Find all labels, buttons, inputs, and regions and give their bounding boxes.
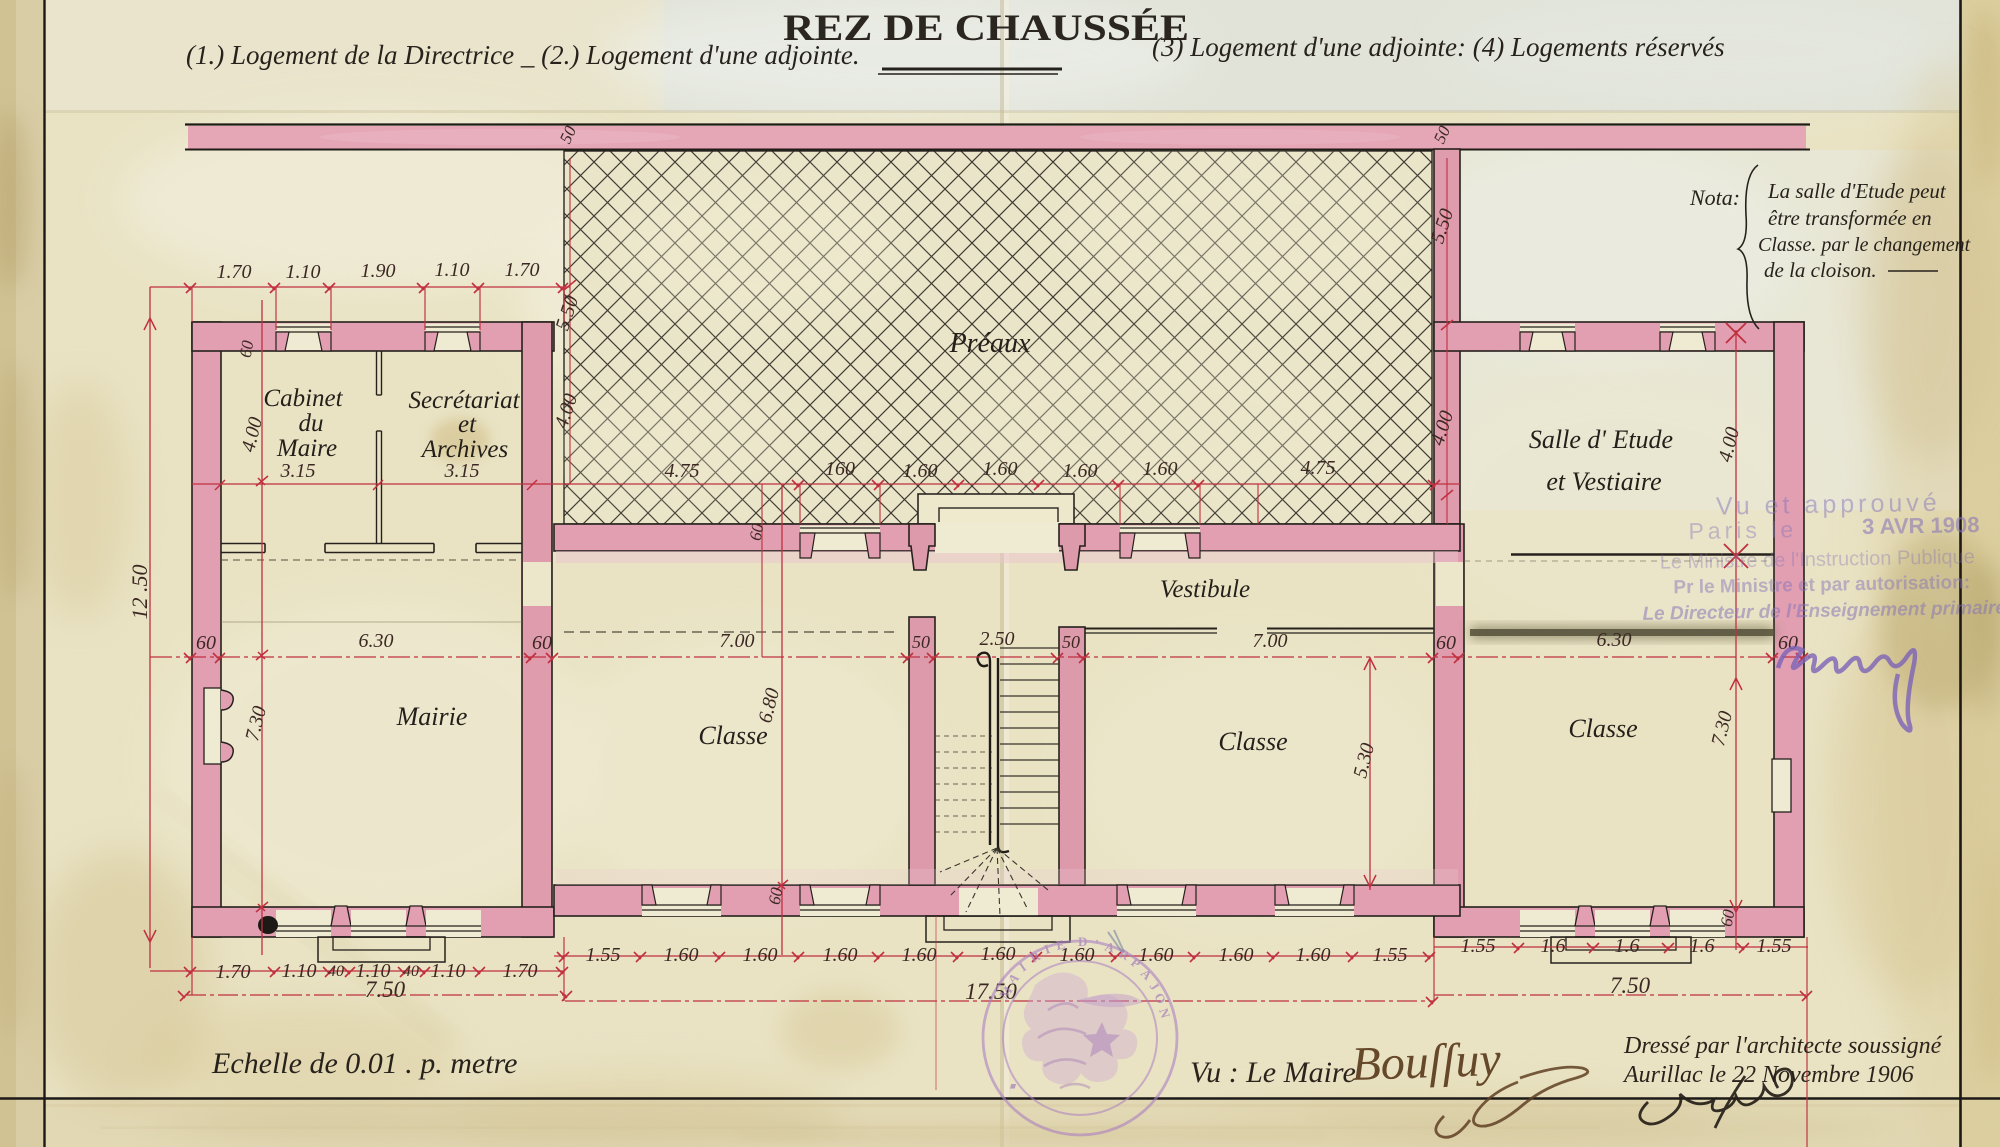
svg-text:Aurillac le 22 Novembre 1906: Aurillac le 22 Novembre 1906: [1622, 1062, 1914, 1088]
svg-text:Vestibule: Vestibule: [1160, 576, 1250, 603]
svg-text:6.30: 6.30: [1597, 629, 1632, 651]
svg-text:1.60: 1.60: [903, 460, 938, 482]
svg-text:Echelle de 0.01 . p. metre: Echelle de 0.01 . p. metre: [211, 1047, 517, 1080]
svg-text:12 .50: 12 .50: [127, 565, 152, 620]
svg-text:1.70: 1.70: [503, 960, 538, 982]
svg-text:7.00: 7.00: [1253, 630, 1288, 652]
svg-text:1.60: 1.60: [1139, 944, 1174, 966]
svg-text:Nota:: Nota:: [1689, 185, 1740, 210]
svg-text:50: 50: [912, 632, 930, 652]
svg-text:et: et: [458, 411, 477, 438]
svg-text:1.60: 1.60: [981, 943, 1016, 965]
svg-text:160: 160: [825, 458, 855, 480]
svg-text:de la cloison.: de la cloison.: [1764, 258, 1877, 282]
svg-text:La salle d'Etude peut: La salle d'Etude peut: [1767, 179, 1947, 203]
svg-text:50: 50: [1062, 632, 1080, 652]
svg-text:1.10: 1.10: [431, 960, 466, 982]
svg-text:1.60: 1.60: [1063, 460, 1098, 482]
svg-text:Mairie: Mairie: [396, 702, 468, 731]
svg-text:1.70: 1.70: [505, 259, 540, 281]
svg-text:Classe: Classe: [1218, 727, 1287, 756]
svg-text:3 AVR 1908: 3 AVR 1908: [1862, 512, 1980, 539]
svg-text:être transformée en: être transformée en: [1768, 206, 1932, 230]
svg-text:et Vestiaire: et Vestiaire: [1546, 467, 1661, 496]
svg-text:Bouſſuy: Bouſſuy: [1351, 1033, 1503, 1091]
svg-text:du: du: [299, 410, 324, 437]
svg-text:1.60: 1.60: [664, 944, 699, 966]
svg-text:Préaux: Préaux: [949, 328, 1031, 359]
svg-text:1.10: 1.10: [435, 259, 470, 281]
svg-text:1.55: 1.55: [1757, 935, 1792, 957]
svg-text:60: 60: [196, 632, 216, 654]
svg-text:7.00: 7.00: [720, 630, 755, 652]
svg-text:3.15: 3.15: [280, 460, 316, 482]
svg-text:40: 40: [403, 963, 419, 980]
svg-text:1.60: 1.60: [1296, 944, 1331, 966]
svg-text:(3) Logement d'une adjointe: (: (3) Logement d'une adjointe: (4) Logemen…: [1152, 32, 1725, 62]
svg-text:1.6: 1.6: [1615, 935, 1640, 957]
svg-text:4.75: 4.75: [1301, 457, 1336, 479]
svg-text:6.30: 6.30: [359, 630, 394, 652]
svg-text:Classe: Classe: [698, 721, 767, 750]
svg-text:40: 40: [328, 963, 344, 980]
svg-text:1.70: 1.70: [217, 261, 252, 283]
svg-text:1.60: 1.60: [743, 944, 778, 966]
svg-text:Paris le: Paris le: [1688, 516, 1797, 544]
svg-text:1.10: 1.10: [286, 261, 321, 283]
svg-text:Classe. par le changement: Classe. par le changement: [1758, 234, 1971, 256]
svg-text:4.75: 4.75: [665, 460, 700, 482]
svg-text:7.50: 7.50: [365, 977, 406, 1002]
svg-text:7.50: 7.50: [1610, 973, 1651, 998]
svg-text:1.6: 1.6: [1690, 935, 1715, 957]
svg-text:60: 60: [532, 632, 552, 654]
svg-text:3.15: 3.15: [444, 460, 480, 482]
svg-text:Cabinet: Cabinet: [263, 385, 343, 412]
svg-text:1.60: 1.60: [983, 458, 1018, 480]
svg-text:60: 60: [1436, 632, 1456, 654]
svg-text:1.55: 1.55: [1461, 935, 1496, 957]
svg-text:1.60: 1.60: [902, 944, 937, 966]
svg-text:Salle d' Etude: Salle d' Etude: [1529, 425, 1673, 454]
svg-text:1.10: 1.10: [282, 960, 317, 982]
svg-text:1.60: 1.60: [1143, 458, 1178, 480]
svg-text:Dressé par l'architecte soussi: Dressé par l'architecte soussigné: [1623, 1033, 1943, 1059]
svg-text:1.60: 1.60: [823, 944, 858, 966]
svg-text:Archives: Archives: [420, 436, 509, 463]
svg-text:1.55: 1.55: [586, 944, 621, 966]
svg-text:Classe: Classe: [1568, 714, 1637, 743]
svg-text:1.90: 1.90: [361, 260, 396, 282]
svg-text:Maire: Maire: [276, 435, 337, 462]
svg-text:1.6: 1.6: [1541, 935, 1566, 957]
svg-text:1.60: 1.60: [1219, 944, 1254, 966]
svg-text:Secrétariat: Secrétariat: [408, 387, 520, 414]
svg-text:Vu : Le Maire: Vu : Le Maire: [1190, 1056, 1356, 1089]
svg-text:1.55: 1.55: [1373, 944, 1408, 966]
svg-text:2.50: 2.50: [980, 628, 1015, 650]
svg-text:(1.) Logement de la Directrice: (1.) Logement de la Directrice _ (2.) Lo…: [186, 40, 860, 70]
svg-text:1.70: 1.70: [216, 961, 251, 983]
svg-text:D: D: [1078, 934, 1087, 949]
